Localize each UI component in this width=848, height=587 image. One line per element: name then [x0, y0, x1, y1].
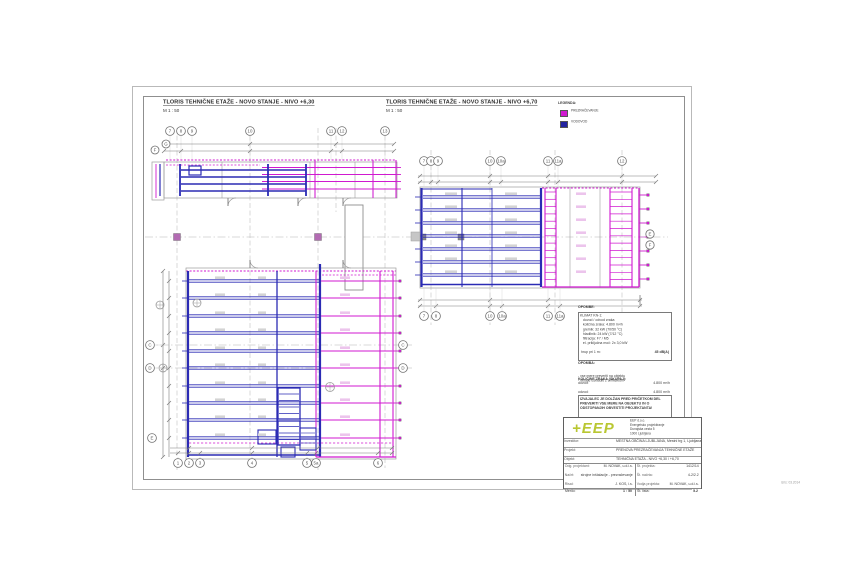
plan1-scale: M 1 : 50	[163, 108, 179, 113]
title-block-logo-row: +EEP EEP d.o.o. Energetsko projektiranje…	[564, 418, 701, 438]
project-row: Projekt:PRENOVA PREZRAČEVANJA TEHNIČNE E…	[564, 447, 701, 456]
air-quantity-row: dovod:4.800 m³/h	[578, 381, 670, 386]
legend-item: PREZRAČEVANJE	[560, 109, 668, 118]
notes-box-value-row: hrup pri 1 m: 45 dB(A)	[581, 350, 669, 359]
plan2-scale: M 1 : 50	[386, 108, 402, 113]
notes-box-value-label: hrup pri 1 m:	[581, 350, 601, 355]
notes-box-value: 45 dB(A)	[655, 350, 669, 355]
plan1-scale-wrap: M 1 : 50	[163, 108, 196, 118]
plan2-title: TLORIS TEHNIČNE ETAŽE - NOVO STANJE - NI…	[386, 99, 537, 106]
project-row: Investitor:MESTNA OBČINA LJUBLJANA, Mest…	[564, 438, 701, 447]
legend-label: PREZRAČEVANJE	[571, 109, 620, 113]
sheet-number-value: 5.2	[693, 489, 698, 494]
notes-box: KLIMAT KN-1: dovod / odvod zraka količin…	[578, 312, 672, 361]
scale-label: Merilo:	[565, 489, 576, 494]
plot-stamp: izris: 03.2014	[700, 481, 800, 485]
sheet-number-label: Št. lista:	[637, 489, 649, 494]
title-block: +EEP EEP d.o.o. Energetsko projektiranje…	[563, 417, 702, 489]
titleblock-field: Št. načrta:4-2/2.2	[636, 473, 700, 478]
legend-swatch	[560, 110, 568, 117]
warning-box: IZVAJALEC JE DOLŽAN PRED PRIČETKOM DEL P…	[578, 395, 672, 418]
plot-stamp-wrap: izris: 03.2014	[600, 481, 700, 490]
notes-group1-header: OPOMBA:	[578, 361, 670, 366]
plan2-scale-wrap: M 1 : 50	[386, 108, 419, 118]
notes-group2: KOLIČINE ZRAKA (SKUPAJ): dovod:4.800 m³/…	[578, 377, 670, 386]
legend-label: VODOVOD	[571, 120, 620, 124]
titleblock-field: Št. projekta:1412/14	[636, 464, 700, 469]
legend-items: PREZRAČEVANJEVODOVOD	[560, 109, 668, 131]
scale-value: 1 : 50	[623, 489, 632, 494]
titleblock-field: Odg. projektant:M. NOVAK, u.d.i.s.	[564, 464, 634, 469]
plan1-title: TLORIS TEHNIČNE ETAŽE - NOVO STANJE - NI…	[163, 99, 314, 106]
notes-box-lines: KLIMAT KN-1: dovod / odvod zraka količin…	[579, 313, 673, 346]
title-block-columns: Odg. projektant:M. NOVAK, u.d.i.s.Načrt:…	[564, 463, 701, 495]
titleblock-field: Načrt:strojne inštalacije - prezračevanj…	[564, 473, 634, 478]
notes-header: OPOMBE:	[578, 305, 670, 310]
legend-swatch	[560, 121, 568, 128]
legend: LEGENDA: PREZRAČEVANJEVODOVOD	[558, 101, 668, 110]
warning-lines: IZVAJALEC JE DOLŽAN PRED PRIČETKOM DEL P…	[579, 396, 673, 411]
legend-title: LEGENDA:	[558, 101, 668, 106]
legend-item: VODOVOD	[560, 120, 668, 129]
title-block-project-rows: Investitor:MESTNA OBČINA LJUBLJANA, Mest…	[564, 438, 701, 465]
company-logo: +EEP	[572, 420, 615, 437]
